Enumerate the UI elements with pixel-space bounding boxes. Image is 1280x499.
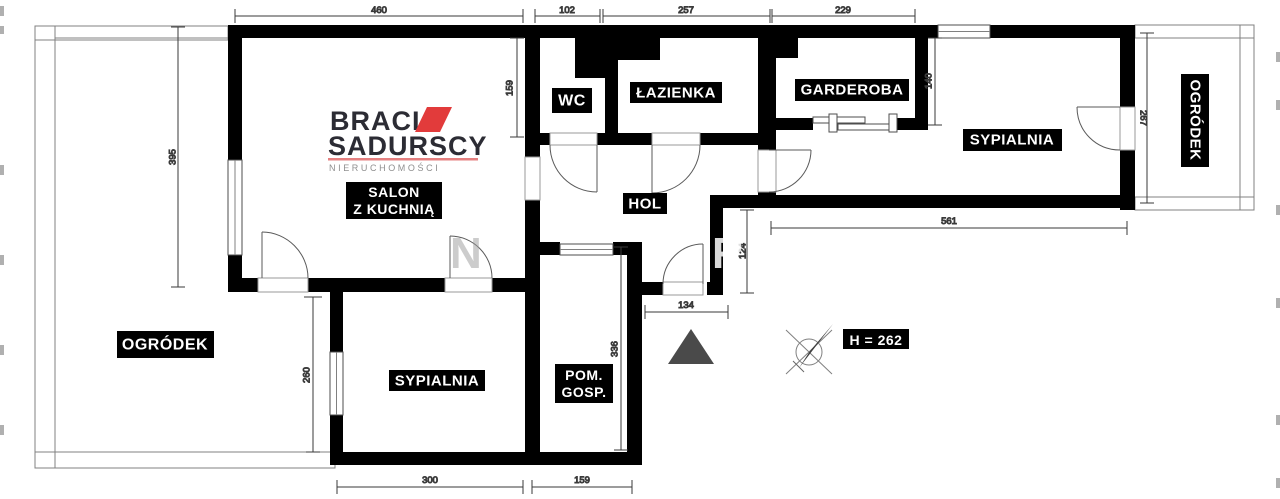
dim-bedroom-bottom-width: 300 bbox=[337, 475, 523, 494]
svg-text:OGRÓDEK: OGRÓDEK bbox=[1187, 79, 1205, 160]
salon-garden-door bbox=[258, 232, 308, 292]
dim-utility-width: 159 bbox=[532, 475, 632, 494]
room-label-bedroom-bottom: SYPIALNIA bbox=[389, 370, 485, 391]
room-label-garden-right: OGRÓDEK bbox=[1181, 74, 1209, 167]
svg-text:ŁAZIENKA: ŁAZIENKA bbox=[636, 85, 716, 102]
brand-logo: BRACIA SADURSCY NIERUCHOMOŚCI bbox=[328, 106, 488, 173]
dim-garden-right-height: 267 bbox=[1138, 33, 1155, 203]
svg-text:POM.: POM. bbox=[565, 367, 603, 383]
bathroom-door bbox=[652, 133, 700, 193]
svg-text:SALON: SALON bbox=[368, 184, 420, 200]
svg-text:SYPIALNIA: SYPIALNIA bbox=[395, 373, 480, 390]
room-label-bedroom-right: SYPIALNIA bbox=[963, 129, 1062, 151]
room-label-salon: SALONZ KUCHNIĄ bbox=[346, 182, 442, 219]
garden-hatch-left bbox=[35, 26, 335, 468]
watermark-letter: N bbox=[450, 229, 482, 278]
svg-text:395: 395 bbox=[168, 149, 179, 165]
svg-text:561: 561 bbox=[941, 216, 957, 227]
dim-bedroom-right-width: 561 bbox=[771, 216, 1127, 235]
room-label-wardrobe: GARDEROBA bbox=[795, 79, 909, 101]
dim-top-3: 257 bbox=[603, 5, 770, 23]
wc-door bbox=[550, 133, 597, 192]
brand-rule bbox=[328, 158, 478, 161]
room-label-wc: WC bbox=[552, 88, 592, 113]
dim-salon-height: 395 bbox=[168, 27, 186, 287]
svg-text:267: 267 bbox=[1138, 110, 1149, 126]
svg-text:140: 140 bbox=[924, 73, 935, 89]
room-labels: SALONZ KUCHNIĄ WC ŁAZIENKA GARDEROBA SYP… bbox=[117, 74, 1209, 403]
entrance-marker-icon bbox=[668, 329, 714, 364]
svg-text:159: 159 bbox=[505, 80, 516, 96]
ceiling-height-badge: H = 262 bbox=[843, 329, 909, 349]
svg-text:H = 262: H = 262 bbox=[850, 332, 903, 348]
bedroom-garden-door bbox=[1077, 107, 1135, 150]
entry-door bbox=[663, 244, 703, 295]
dim-top-1: 460 bbox=[235, 5, 523, 23]
room-label-garden-left: OGRÓDEK bbox=[117, 331, 214, 358]
salon-hall-opening bbox=[525, 157, 540, 200]
watermark-letter: R bbox=[712, 229, 744, 278]
wardrobe-sliding-door bbox=[813, 114, 897, 132]
room-label-utility: POM.GOSP. bbox=[555, 364, 613, 403]
svg-text:Z KUCHNIĄ: Z KUCHNIĄ bbox=[353, 201, 435, 217]
svg-text:336: 336 bbox=[610, 341, 621, 357]
svg-text:257: 257 bbox=[678, 5, 694, 16]
dimensions: 460 102 257 229 395 159 140 267 561 124 … bbox=[168, 5, 1155, 494]
floor-plan: 460 102 257 229 395 159 140 267 561 124 … bbox=[0, 0, 1280, 499]
salon-garden-window bbox=[228, 160, 242, 255]
svg-text:WC: WC bbox=[558, 93, 586, 110]
svg-text:229: 229 bbox=[835, 5, 851, 16]
svg-text:GARDEROBA: GARDEROBA bbox=[801, 82, 904, 99]
hall-utility-window bbox=[560, 244, 613, 255]
dim-wc-height: 159 bbox=[505, 38, 525, 137]
compass-icon bbox=[786, 324, 833, 374]
svg-text:GOSP.: GOSP. bbox=[561, 384, 606, 400]
top-bedroom-window bbox=[938, 25, 990, 38]
svg-text:300: 300 bbox=[422, 475, 438, 486]
svg-text:460: 460 bbox=[371, 5, 387, 16]
svg-text:134: 134 bbox=[678, 300, 694, 311]
svg-text:159: 159 bbox=[574, 475, 590, 486]
brand-line2: SADURSCY bbox=[328, 131, 488, 161]
svg-text:SYPIALNIA: SYPIALNIA bbox=[970, 132, 1055, 149]
room-label-bathroom: ŁAZIENKA bbox=[630, 82, 722, 103]
dim-top-4: 229 bbox=[772, 5, 915, 23]
dim-top-2: 102 bbox=[535, 5, 600, 23]
svg-text:OGRÓDEK: OGRÓDEK bbox=[122, 335, 208, 354]
brand-tagline: NIERUCHOMOŚCI bbox=[329, 162, 440, 173]
room-label-hall: HOL bbox=[623, 193, 667, 214]
svg-text:260: 260 bbox=[302, 367, 313, 383]
dim-garden-left-height: 260 bbox=[302, 297, 323, 452]
svg-text:102: 102 bbox=[559, 5, 575, 16]
dim-utility-height: 336 bbox=[610, 247, 629, 450]
dim-entry-width: 134 bbox=[645, 300, 728, 319]
svg-text:HOL: HOL bbox=[628, 196, 661, 213]
hall-corridor-door bbox=[758, 150, 811, 192]
bottom-bedroom-window bbox=[330, 352, 343, 415]
